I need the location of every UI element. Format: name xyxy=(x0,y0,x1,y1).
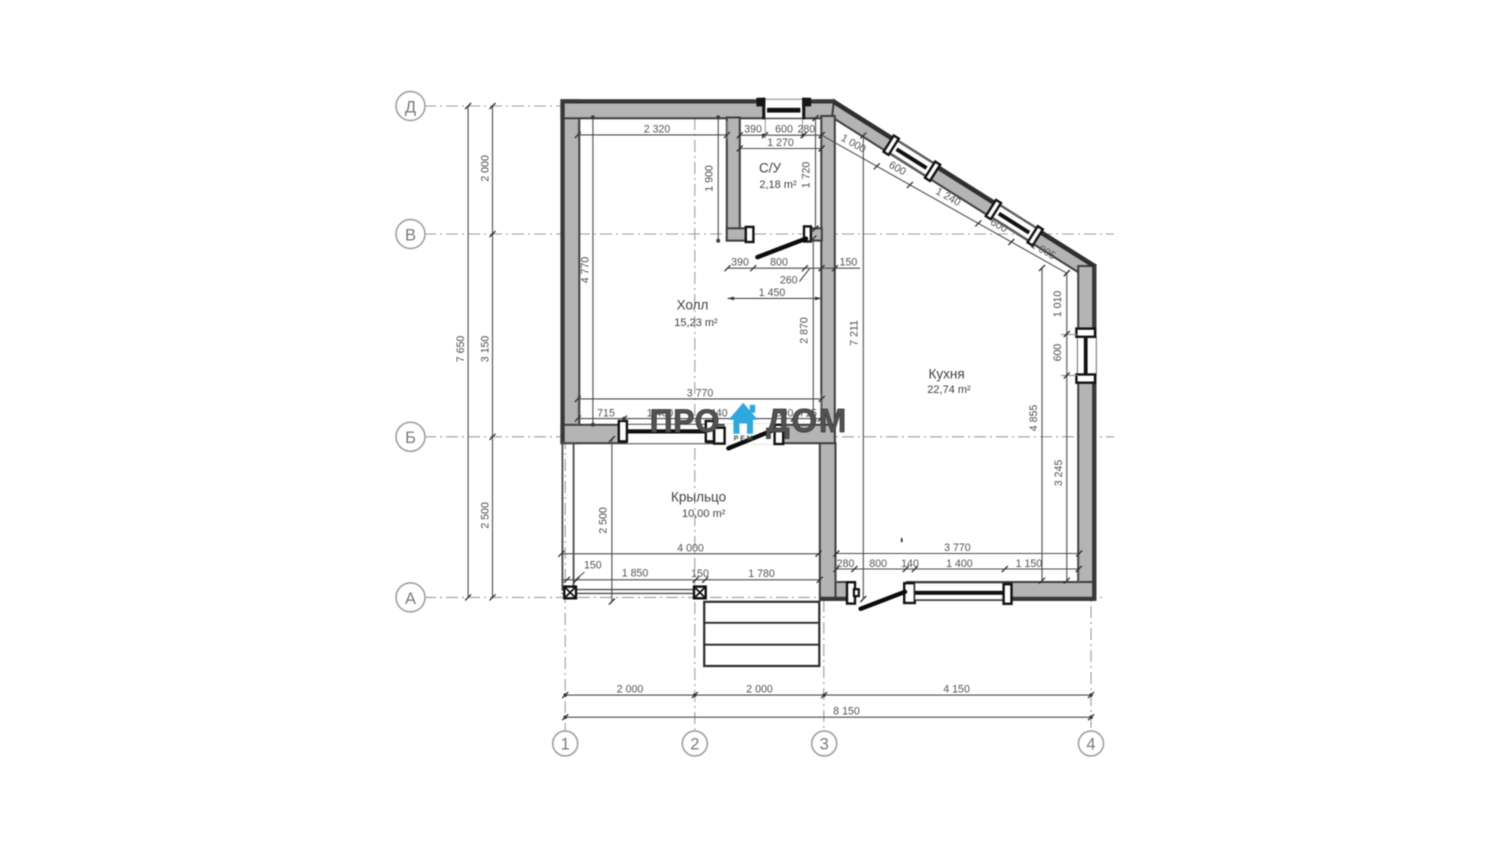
svg-text:280: 280 xyxy=(797,124,815,136)
svg-text:ДОМ: ДОМ xyxy=(766,402,848,439)
svg-text:Б: Б xyxy=(405,429,416,447)
svg-text:1 900: 1 900 xyxy=(704,165,716,192)
svg-text:4: 4 xyxy=(1086,735,1095,753)
svg-text:1 780: 1 780 xyxy=(748,568,775,580)
svg-text:1 010: 1 010 xyxy=(1052,291,1064,318)
svg-text:2,18 m²: 2,18 m² xyxy=(759,179,797,191)
svg-text:15,23 m²: 15,23 m² xyxy=(674,317,718,329)
svg-text:600: 600 xyxy=(775,124,793,136)
svg-text:10,00 m²: 10,00 m² xyxy=(682,508,726,520)
svg-text:А: А xyxy=(405,590,416,608)
svg-text:2 000: 2 000 xyxy=(479,155,491,182)
svg-text:2 870: 2 870 xyxy=(799,317,811,344)
svg-text:600: 600 xyxy=(1052,344,1064,362)
svg-text:1 150: 1 150 xyxy=(1016,558,1043,570)
svg-text:800: 800 xyxy=(770,257,788,269)
svg-text:Кухня: Кухня xyxy=(929,367,965,382)
svg-text:3 245: 3 245 xyxy=(1053,460,1065,487)
svg-text:ПРО: ПРО xyxy=(650,403,720,439)
svg-text:2 000: 2 000 xyxy=(617,684,644,696)
svg-text:2 320: 2 320 xyxy=(644,124,671,136)
svg-text:390: 390 xyxy=(744,124,762,136)
svg-text:8 150: 8 150 xyxy=(833,706,860,718)
svg-text:С/У: С/У xyxy=(759,161,782,176)
svg-text:1 270: 1 270 xyxy=(767,137,794,149)
svg-text:Крыльцо: Крыльцо xyxy=(671,490,726,505)
svg-text:22,74 m²: 22,74 m² xyxy=(927,384,971,396)
svg-text:280: 280 xyxy=(837,558,855,570)
svg-text:2: 2 xyxy=(690,735,699,753)
svg-text:3 150: 3 150 xyxy=(479,336,491,363)
svg-text:3 770: 3 770 xyxy=(944,542,971,554)
svg-text:Д: Д xyxy=(405,98,416,116)
svg-text:150: 150 xyxy=(584,559,602,571)
svg-text:3 770: 3 770 xyxy=(687,387,714,399)
svg-text:2 500: 2 500 xyxy=(479,502,491,529)
svg-text:800: 800 xyxy=(869,558,887,570)
svg-text:1 400: 1 400 xyxy=(946,558,973,570)
svg-text:7 650: 7 650 xyxy=(455,336,467,363)
svg-text:3: 3 xyxy=(820,735,829,753)
svg-text:1: 1 xyxy=(561,735,570,753)
svg-text:Холл: Холл xyxy=(677,298,709,313)
svg-text:2 500: 2 500 xyxy=(597,507,609,534)
svg-text:4 855: 4 855 xyxy=(1028,405,1040,432)
svg-text:150: 150 xyxy=(691,568,709,580)
svg-text:715: 715 xyxy=(597,407,615,419)
svg-text:2 000: 2 000 xyxy=(746,684,773,696)
svg-text:140: 140 xyxy=(901,558,919,570)
svg-text:4 150: 4 150 xyxy=(943,684,970,696)
svg-text:1 850: 1 850 xyxy=(622,567,649,579)
svg-text:4 770: 4 770 xyxy=(580,257,592,284)
svg-text:150: 150 xyxy=(840,257,858,269)
svg-text:В: В xyxy=(405,226,416,244)
svg-text:РЕМ: РЕМ xyxy=(734,433,755,442)
svg-text:4 000: 4 000 xyxy=(677,542,704,554)
svg-text:260: 260 xyxy=(780,275,798,287)
svg-text:7 211: 7 211 xyxy=(849,320,861,346)
svg-text:1 450: 1 450 xyxy=(759,287,786,299)
svg-text:1 720: 1 720 xyxy=(800,162,812,189)
svg-text:390: 390 xyxy=(731,257,749,269)
